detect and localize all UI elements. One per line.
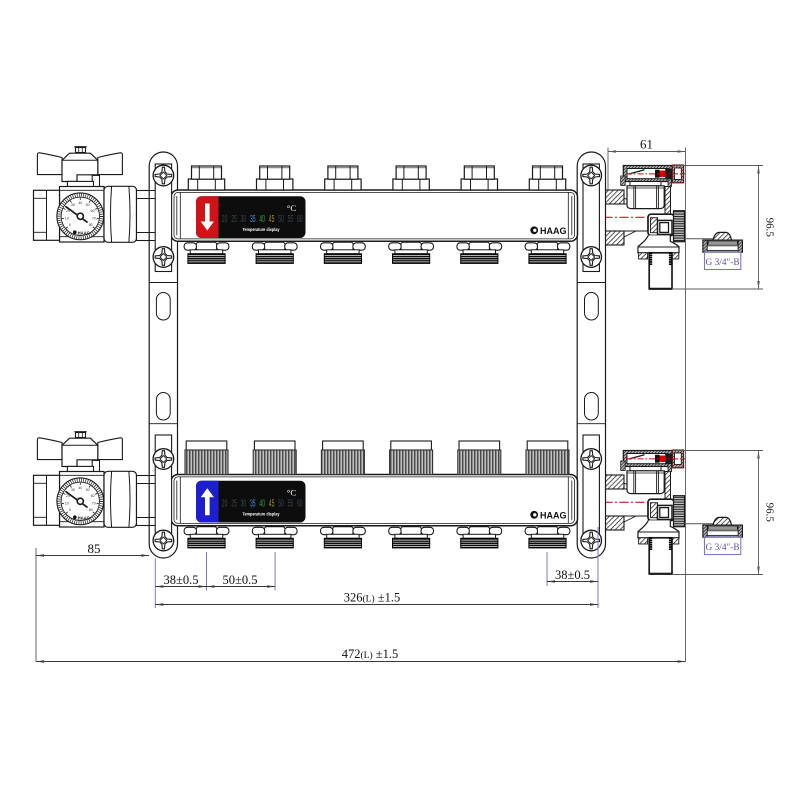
svg-text:55: 55 [288,498,294,509]
svg-text:30: 30 [71,488,75,492]
svg-text:70: 70 [92,216,96,220]
svg-text:10: 10 [65,501,69,505]
svg-text:HAAG: HAAG [540,511,567,522]
svg-text:50: 50 [278,214,284,225]
svg-text:70: 70 [92,501,96,505]
svg-text:61: 61 [640,137,653,152]
svg-text:50: 50 [278,498,284,509]
svg-text:HAAG: HAAG [540,226,567,237]
svg-text:30: 30 [241,214,247,225]
svg-text:Temperature display: Temperature display [243,227,280,232]
svg-text:38±0.5: 38±0.5 [555,568,590,582]
svg-text:60: 60 [91,494,95,498]
svg-text:38±0.5: 38±0.5 [164,573,199,587]
svg-text:40: 40 [78,486,82,490]
svg-text:80: 80 [89,508,93,512]
svg-text:25: 25 [231,498,237,509]
svg-text:0: 0 [69,508,71,512]
svg-text:40: 40 [78,201,82,205]
svg-text:60: 60 [297,498,303,509]
svg-text:40: 40 [259,498,265,509]
svg-text:45: 45 [269,498,275,509]
svg-text:°C: °C [287,203,297,213]
svg-text:80: 80 [89,223,93,227]
svg-text:10: 10 [65,216,69,220]
svg-text:60: 60 [91,209,95,213]
svg-text:35: 35 [250,498,256,509]
svg-text:35: 35 [250,214,256,225]
svg-text:50: 50 [86,488,90,492]
svg-text:G 3/4″-B: G 3/4″-B [706,543,740,553]
svg-text:85: 85 [88,541,101,556]
svg-text:40: 40 [259,214,265,225]
svg-text:25: 25 [231,214,237,225]
svg-text:30: 30 [241,498,247,509]
svg-text:HAAG: HAAG [78,231,90,236]
svg-text:45: 45 [269,214,275,225]
svg-text:HAAG: HAAG [78,516,90,521]
svg-text:G 3/4″-B: G 3/4″-B [706,258,740,268]
svg-text:20: 20 [222,498,228,509]
svg-text:55: 55 [288,214,294,225]
svg-text:20: 20 [222,214,228,225]
svg-text:96.5: 96.5 [764,503,776,523]
svg-text:60: 60 [297,214,303,225]
svg-text:°C: °C [287,488,297,498]
svg-text:50±0.5: 50±0.5 [223,573,258,587]
svg-text:30: 30 [71,203,75,207]
svg-text:0: 0 [69,223,71,227]
svg-text:Temperature display: Temperature display [243,512,280,517]
svg-text:50: 50 [86,203,90,207]
svg-text:96.5: 96.5 [764,218,776,238]
